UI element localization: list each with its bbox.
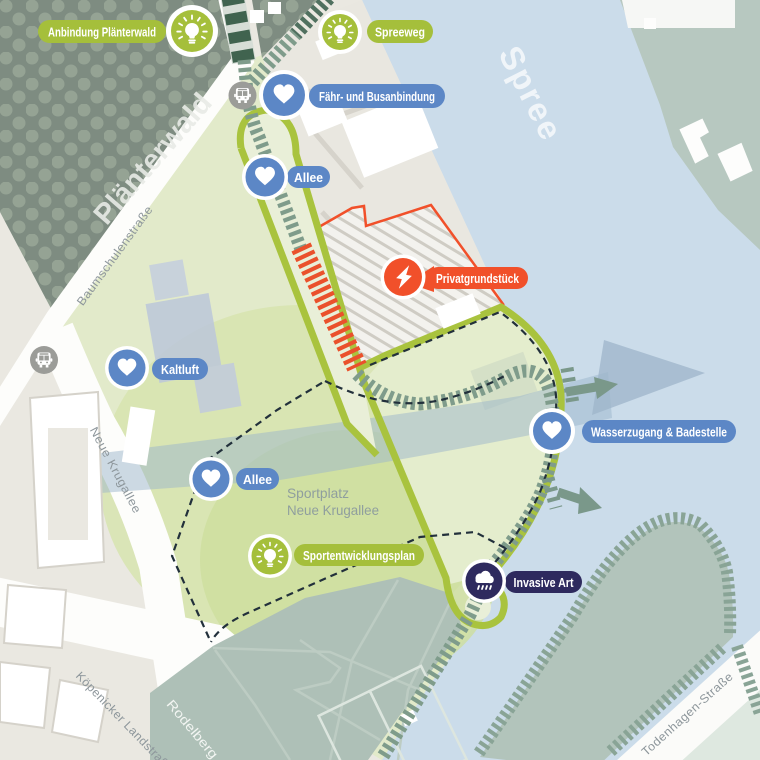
svg-text:Allee: Allee <box>243 472 272 487</box>
svg-text:Privatgrundstück: Privatgrundstück <box>436 271 520 286</box>
svg-text:Fähr- und Busanbindung: Fähr- und Busanbindung <box>319 89 435 104</box>
svg-text:Wasserzugang & Badestelle: Wasserzugang & Badestelle <box>591 425 727 440</box>
svg-text:Neue Krugallee: Neue Krugallee <box>287 502 379 518</box>
svg-text:Allee: Allee <box>294 170 323 185</box>
svg-text:Anbindung Plänterwald: Anbindung Plänterwald <box>48 25 156 40</box>
svg-text:Kaltluft: Kaltluft <box>161 362 200 377</box>
svg-text:Sportentwicklungsplan: Sportentwicklungsplan <box>303 548 415 563</box>
svg-text:Spreeweg: Spreeweg <box>375 25 425 40</box>
svg-text:Invasive Art: Invasive Art <box>514 575 575 590</box>
svg-text:Sportplatz: Sportplatz <box>287 485 349 501</box>
